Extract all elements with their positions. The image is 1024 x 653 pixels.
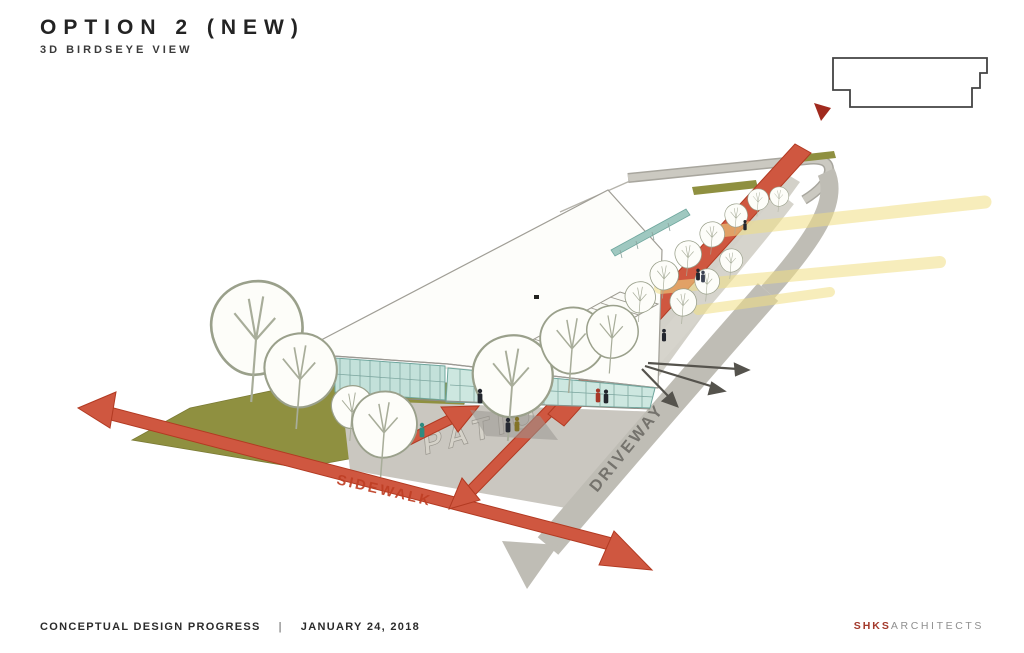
firm-suffix: ARCHITECTS [891, 620, 984, 632]
person [743, 220, 746, 230]
footer-date: JANUARY 24, 2018 [301, 621, 420, 633]
page-title: OPTION 2 (NEW) [40, 16, 305, 40]
person [515, 417, 520, 432]
key-plan-outline [833, 58, 987, 107]
footer-status: CONCEPTUAL DESIGN PROGRESS [40, 621, 261, 633]
presentation-slide: PATIO SIDEWALK [0, 0, 1024, 653]
page-subtitle: 3D BIRDSEYE VIEW [40, 44, 305, 56]
rendering-canvas: PATIO SIDEWALK [0, 0, 1024, 653]
person [604, 390, 609, 404]
person [662, 329, 666, 341]
person [596, 389, 601, 403]
sidewalk-arrowhead-left [78, 392, 116, 428]
firm-logo: SHKSARCHITECTS [854, 620, 984, 632]
person [420, 423, 425, 438]
key-plan [814, 58, 987, 121]
rooftop-unit [534, 295, 539, 299]
person [506, 418, 511, 433]
person [478, 389, 483, 404]
person [696, 269, 700, 281]
person [701, 271, 705, 283]
footer-separator: | [279, 621, 283, 633]
location-marker-icon [814, 103, 831, 121]
driveway-arrowhead [502, 541, 558, 589]
firm-name: SHKS [854, 620, 891, 632]
title-block: OPTION 2 (NEW) 3D BIRDSEYE VIEW [40, 16, 305, 56]
footer: CONCEPTUAL DESIGN PROGRESS | JANUARY 24,… [40, 621, 420, 633]
